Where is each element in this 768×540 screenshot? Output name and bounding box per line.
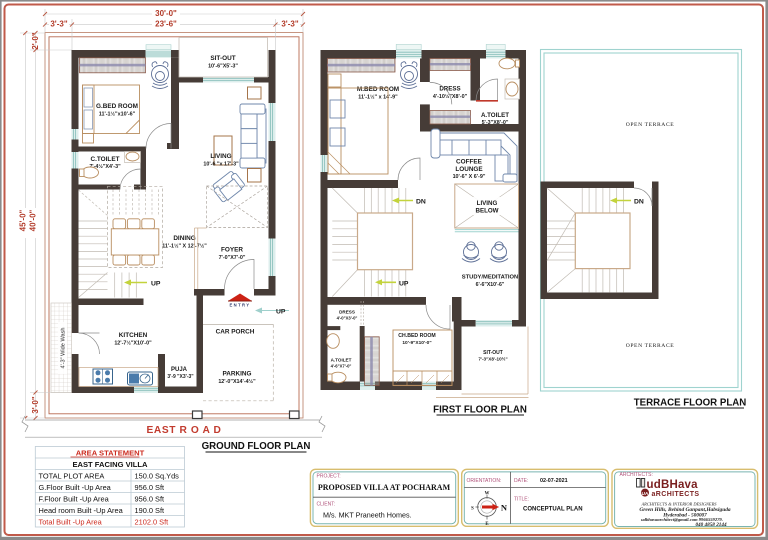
svg-text:10'-6 "x 17'-3": 10'-6 "x 17'-3": [203, 162, 239, 168]
svg-text:KITCHEN: KITCHEN: [119, 332, 148, 339]
svg-text:G.Floor Built -Up Area: G.Floor Built -Up Area: [39, 483, 112, 492]
svg-text:10'-9"X10'-0": 10'-9"X10'-0": [402, 340, 431, 346]
svg-text:TERRACE FLOOR PLAN: TERRACE FLOOR PLAN: [634, 398, 746, 409]
svg-text:PROPOSED VILLA AT POCHARAM: PROPOSED VILLA AT POCHARAM: [318, 483, 451, 492]
svg-text:4'-6"X7'-0": 4'-6"X7'-0": [331, 364, 352, 369]
svg-text:SIT-OUT: SIT-OUT: [210, 55, 235, 62]
svg-text:M/s. MKT Praneeth Homes.: M/s. MKT Praneeth Homes.: [323, 511, 412, 520]
svg-text:A.TOILET: A.TOILET: [481, 112, 509, 119]
svg-text:4'-3" Wide Wash: 4'-3" Wide Wash: [61, 327, 67, 368]
svg-text:CLIENT:: CLIENT:: [317, 502, 336, 508]
svg-text:956.0 Sft: 956.0 Sft: [135, 495, 165, 504]
svg-text:OPEN TERRACE: OPEN TERRACE: [626, 343, 675, 349]
svg-text:BELOW: BELOW: [475, 208, 498, 215]
svg-text:AREA STATEMENT: AREA STATEMENT: [76, 449, 145, 458]
svg-text:02-07-2021: 02-07-2021: [540, 478, 568, 484]
svg-text:DRESS: DRESS: [339, 310, 355, 315]
svg-text:UP: UP: [399, 281, 409, 288]
svg-text:11'-1½" X 12'-7½": 11'-1½" X 12'-7½": [162, 243, 207, 250]
svg-text:LOUNGE: LOUNGE: [455, 166, 483, 173]
svg-text:040 4858 2144: 040 4858 2144: [695, 522, 727, 528]
svg-text:UP: UP: [151, 281, 161, 288]
svg-text:A.TOILET: A.TOILET: [331, 358, 352, 363]
svg-text:GROUND FLOOR PLAN: GROUND FLOOR PLAN: [202, 441, 311, 452]
svg-text:7'-3"X8'-10½": 7'-3"X8'-10½": [478, 356, 507, 362]
svg-text:F.Floor Built -Up Area: F.Floor Built -Up Area: [39, 495, 110, 504]
svg-text:DN: DN: [634, 199, 644, 206]
svg-text:PARKING: PARKING: [223, 371, 252, 378]
svg-text:4'-0"X3'-0": 4'-0"X3'-0": [337, 316, 358, 321]
svg-text:956.0 Sft: 956.0 Sft: [135, 483, 165, 492]
svg-text:C.TOILET: C.TOILET: [91, 156, 120, 163]
svg-text:LIVING: LIVING: [477, 200, 498, 207]
svg-text:ARCHITECTS:: ARCHITECTS:: [620, 472, 653, 478]
svg-text:UP: UP: [276, 309, 286, 316]
svg-text:OPEN TERRACE: OPEN TERRACE: [626, 122, 675, 128]
svg-text:M.BED ROOM: M.BED ROOM: [357, 86, 399, 93]
svg-text:23'-6": 23'-6": [155, 20, 177, 29]
svg-text:3'-0": 3'-0": [31, 396, 40, 413]
svg-text:10'-6"X5'-3": 10'-6"X5'-3": [208, 64, 238, 70]
svg-text:190.0 Sft: 190.0 Sft: [135, 506, 165, 515]
svg-text:CONCEPTUAL PLAN: CONCEPTUAL PLAN: [523, 507, 583, 513]
svg-text:7'-0"X7'-0": 7'-0"X7'-0": [219, 255, 246, 261]
svg-text:G.BED ROOM: G.BED ROOM: [96, 103, 138, 110]
svg-text:UA: UA: [642, 491, 649, 496]
svg-text:PUJA: PUJA: [171, 367, 188, 373]
svg-text:3'-3": 3'-3": [281, 20, 298, 29]
svg-text:FIRST FLOOR PLAN: FIRST FLOOR PLAN: [433, 405, 527, 416]
svg-text:11'-1½"x10'-6": 11'-1½"x10'-6": [99, 111, 136, 118]
svg-text:W: W: [485, 492, 490, 497]
svg-text:ENTRY: ENTRY: [229, 303, 250, 308]
svg-text:FOYER: FOYER: [221, 247, 243, 254]
svg-text:CAR PORCH: CAR PORCH: [216, 329, 255, 336]
svg-text:SIT-OUT: SIT-OUT: [483, 350, 503, 356]
svg-text:S: S: [471, 507, 474, 512]
svg-text:3'-9 "X3'-3": 3'-9 "X3'-3": [167, 374, 194, 380]
svg-text:6'-6"X10'-6": 6'-6"X10'-6": [476, 282, 505, 288]
svg-text:10'-6" X 6'-9": 10'-6" X 6'-9": [453, 174, 486, 180]
svg-text:ORIENTATION:: ORIENTATION:: [467, 478, 502, 484]
svg-text:TITLE:: TITLE:: [514, 497, 529, 503]
svg-text:Total Built -Up Area: Total Built -Up Area: [39, 518, 103, 527]
svg-text:E: E: [485, 522, 488, 527]
svg-text:COFFEE: COFFEE: [456, 159, 483, 166]
svg-text:aRCHITECTS: aRCHITECTS: [652, 491, 700, 498]
svg-text:udBHava: udBHava: [647, 479, 699, 491]
svg-text:DN: DN: [416, 199, 426, 206]
svg-text:3'-3": 3'-3": [50, 20, 67, 29]
svg-text:STUDY/MEDITATION: STUDY/MEDITATION: [462, 275, 518, 281]
svg-text:30'-0": 30'-0": [155, 9, 177, 18]
svg-text:2102.0 Sft: 2102.0 Sft: [135, 518, 169, 527]
svg-text:45'-0": 45'-0": [19, 209, 28, 231]
svg-text:150.0 Sq.Yds: 150.0 Sq.Yds: [135, 472, 180, 481]
svg-text:TOTAL PLOT AREA: TOTAL PLOT AREA: [39, 472, 105, 481]
svg-text:DINING: DINING: [173, 235, 195, 242]
svg-text:PROJECT:: PROJECT:: [317, 474, 341, 480]
svg-text:11'-1½" x 14'-9": 11'-1½" x 14'-9": [358, 94, 398, 101]
svg-text:12'-0"X14'-4½": 12'-0"X14'-4½": [218, 378, 256, 385]
svg-text:EAST FACING VILLA: EAST FACING VILLA: [72, 460, 148, 469]
svg-text:N: N: [501, 503, 508, 513]
svg-text:EAST R O A D: EAST R O A D: [147, 425, 222, 436]
svg-text:DATE:: DATE:: [514, 478, 528, 484]
svg-text:5'-3"X8'-0": 5'-3"X8'-0": [482, 120, 509, 126]
svg-text:2'-0": 2'-0": [31, 32, 40, 49]
svg-text:LIVING: LIVING: [210, 153, 231, 160]
svg-text:40'-0": 40'-0": [29, 209, 38, 231]
svg-text:ARCHITECTS & INTERIOR DESIGNER: ARCHITECTS & INTERIOR DESIGNERS: [640, 502, 717, 507]
svg-text:12'-7½"X10'-0": 12'-7½"X10'-0": [114, 340, 152, 347]
svg-text:CH.BED ROOM: CH.BED ROOM: [398, 333, 435, 339]
svg-text:Head room Built -Up Area: Head room Built -Up Area: [39, 506, 124, 515]
